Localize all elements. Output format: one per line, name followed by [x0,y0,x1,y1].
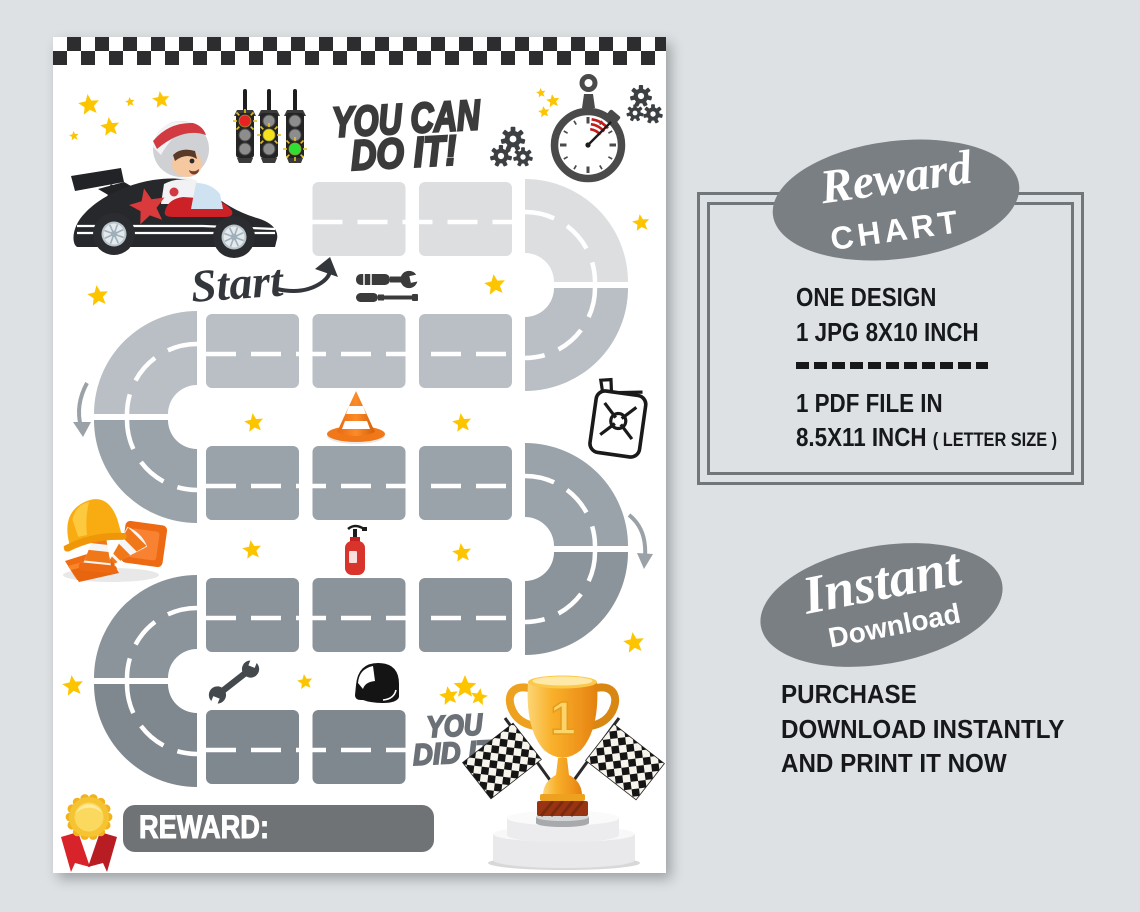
svg-text:DO IT!: DO IT! [350,126,458,178]
svg-text:REWARD:: REWARD: [139,809,269,845]
svg-text:1: 1 [550,692,576,744]
svg-text:Start: Start [189,254,286,311]
